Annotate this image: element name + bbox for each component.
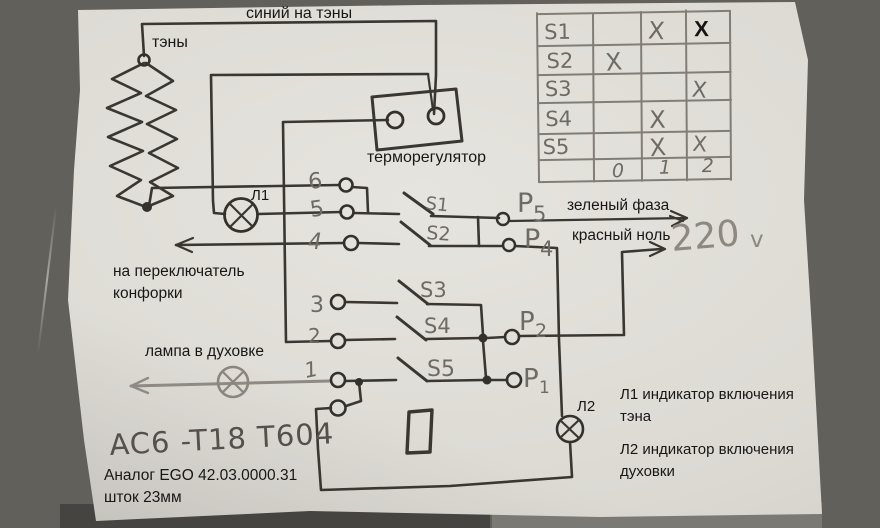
wire-bridge-p5-p4 xyxy=(478,217,479,246)
table-mark-s3-pos2: X xyxy=(691,78,708,104)
terminal-2 xyxy=(331,334,345,348)
label-to-burner-line1: на переключатель xyxy=(113,261,245,283)
pin-number-1: 1 xyxy=(302,357,320,383)
stem-symbol xyxy=(407,410,432,453)
table-mark-s2-pos0: X xyxy=(604,47,623,76)
label-heaters: тэны xyxy=(152,32,188,54)
heater-zigzag-left xyxy=(107,63,146,207)
label-thermostat: терморегулятор xyxy=(367,147,486,169)
switch-s5-blade xyxy=(398,358,427,381)
wire-1-to-s5 xyxy=(345,380,396,381)
table-mark-s1-pos1: X xyxy=(647,16,665,45)
voltage-unit: v xyxy=(750,227,764,253)
junction-dot-p2 xyxy=(479,334,488,343)
table-mark-s4-pos1: X xyxy=(649,106,666,134)
wire-l1-to-5 xyxy=(258,212,341,214)
table-row-label: S1 xyxy=(544,20,571,44)
terminal-p1 xyxy=(507,373,521,387)
label-l1-desc-line1: Л1 индикатор включения xyxy=(620,384,794,406)
output-label-p2: P xyxy=(519,307,535,337)
model-handwritten: AC6 -T18 T604 xyxy=(109,416,335,462)
table-mark-s1-pos2: X xyxy=(694,16,709,41)
wire-5-to-s1 xyxy=(354,213,399,214)
output-label-p2-sub: 2 xyxy=(535,320,547,342)
wire-bridge-6-5 xyxy=(352,187,368,212)
output-label-p5: P xyxy=(517,188,533,219)
wire-4-to-s2 xyxy=(358,243,399,244)
wire-junction-to-p2 xyxy=(487,337,505,338)
switch-state-table: S1 S2 S3 S4 S5 X X X X X X X 0 1 2 xyxy=(537,10,732,183)
label-green-phase: зеленый фаза xyxy=(567,195,669,217)
voltage-value: 220 xyxy=(669,213,741,260)
label-l1: Л1 xyxy=(251,185,269,207)
thermostat-terminal-right xyxy=(428,108,444,124)
table-row-label: S2 xyxy=(546,49,573,73)
terminal-1 xyxy=(331,373,345,387)
heater-bottom-junction xyxy=(142,202,152,212)
switch-label-s4: S4 xyxy=(424,314,451,338)
table-row-label: S3 xyxy=(545,77,572,101)
junction-dot-p1 xyxy=(483,376,492,385)
pin-number-2: 2 xyxy=(308,324,321,348)
terminal-3 xyxy=(331,295,345,309)
table-mark-s5-pos2: X xyxy=(692,132,708,157)
wires xyxy=(142,21,687,490)
label-l2-desc-line1: Л2 индикатор включения xyxy=(620,439,794,461)
output-label-p4: P xyxy=(524,224,540,255)
switch-label-s5: S5 xyxy=(427,357,455,382)
label-red-neutral: красный ноль xyxy=(572,225,670,247)
table-row-label: S4 xyxy=(545,107,572,131)
thermostat-terminal-left xyxy=(387,112,403,128)
switch-label-s3: S3 xyxy=(420,278,447,302)
label-to-burner-line2: конфорки xyxy=(113,283,183,305)
table-footer-0: 0 xyxy=(612,160,624,182)
wire-s4-out xyxy=(426,338,480,339)
label-analog-line2: шток 23мм xyxy=(104,487,182,509)
wire-s1-out xyxy=(431,216,499,218)
label-oven-lamp: лампа в духовке xyxy=(145,341,264,363)
pin-number-3: 3 xyxy=(310,293,324,318)
terminal-p2 xyxy=(505,330,519,344)
pin-number-5: 5 xyxy=(308,196,325,223)
terminal-5 xyxy=(341,206,354,219)
oven-lamp-icon xyxy=(131,367,330,397)
wire-2-to-s4 xyxy=(345,339,395,340)
terminal-p4 xyxy=(503,239,515,251)
wire-3-to-s3 xyxy=(345,302,397,303)
table-footer-1: 1 xyxy=(659,157,671,179)
wire-l2-bottom-loop xyxy=(316,408,572,490)
heater-zigzag-right xyxy=(146,63,178,206)
pin-number-4: 4 xyxy=(308,230,322,255)
label-blue-to-heaters: синий на тэны xyxy=(246,3,352,25)
label-analog-line1: Аналог EGO 42.03.0000.31 xyxy=(104,465,297,487)
pin-numbers: 6 5 4 3 2 1 xyxy=(302,169,326,383)
wire-junction-down xyxy=(483,341,486,378)
label-l2: Л2 xyxy=(577,396,595,418)
terminal-lower xyxy=(331,401,346,416)
table-footer-2: 2 xyxy=(702,155,714,177)
lamp-l2-icon xyxy=(557,416,583,442)
junction-dot-line1 xyxy=(355,378,363,386)
table-row-label: S5 xyxy=(542,135,569,159)
terminal-4 xyxy=(344,236,358,250)
output-label-p1-sub: 1 xyxy=(539,378,550,398)
output-label-p5-sub: 5 xyxy=(533,202,546,226)
output-label-p1: P xyxy=(523,364,539,394)
switch-s4-blade xyxy=(397,317,426,340)
terminal-6 xyxy=(340,179,353,192)
label-l1-desc-line2: тэна xyxy=(620,406,651,428)
output-label-p4-sub: 4 xyxy=(540,237,553,261)
switch-labels: S1 S2 S3 S4 S5 xyxy=(420,193,455,382)
switch-label-s1: S1 xyxy=(424,193,449,216)
label-l2-desc-line2: духовки xyxy=(620,461,675,483)
switch-label-s2: S2 xyxy=(426,222,452,246)
pin-number-6: 6 xyxy=(307,169,324,195)
photo-of-hand-drawn-wiring-diagram: S1 S2 S3 S4 S5 X X X X X X X 0 1 2 6 5 4… xyxy=(0,0,880,528)
